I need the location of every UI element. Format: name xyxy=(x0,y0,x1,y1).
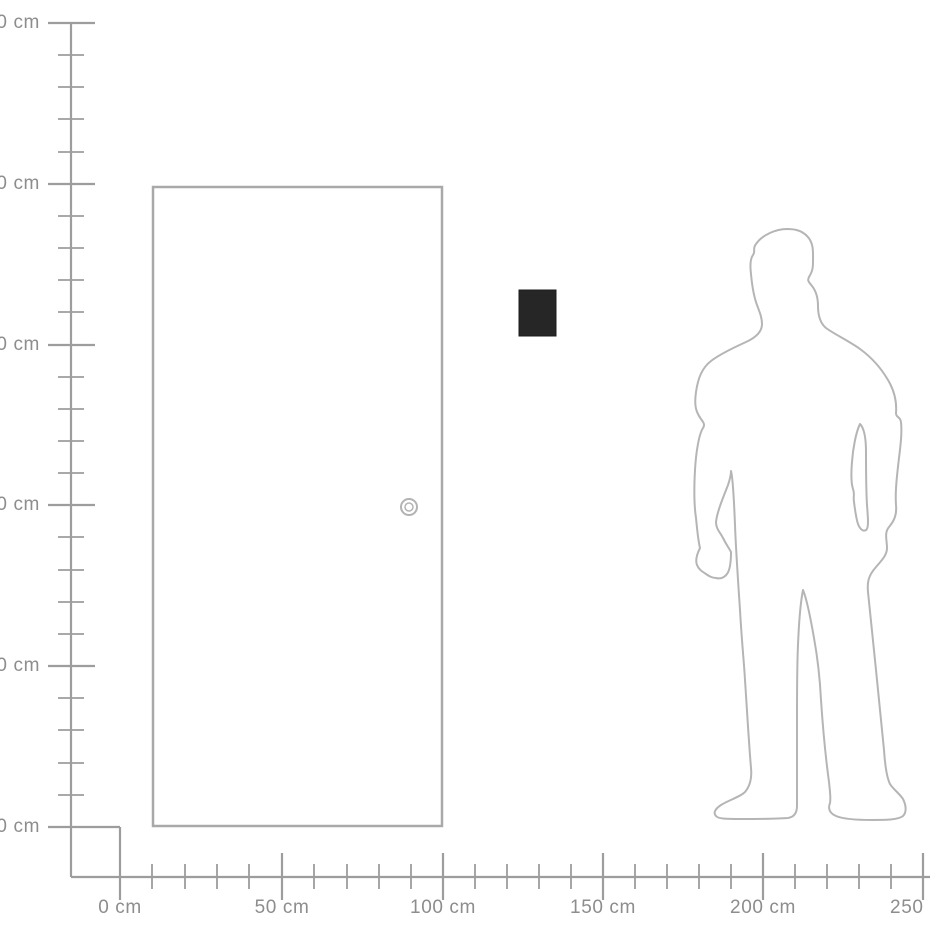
size-diagram: 250 cm 200 cm 150 cm 100 cm 50 cm 0 cm 0… xyxy=(0,0,930,930)
horizontal-ruler-major-ticks xyxy=(120,827,923,900)
human-silhouette xyxy=(694,229,905,820)
horizontal-ruler-label-0: 0 cm xyxy=(60,896,180,920)
vertical-ruler-label-100: 100 cm xyxy=(0,493,40,517)
vertical-ruler-major-ticks xyxy=(48,23,120,827)
diagram-canvas xyxy=(0,0,930,930)
vertical-ruler-label-150: 150 cm xyxy=(0,333,40,357)
horizontal-ruler-label-200: 200 cm xyxy=(703,896,823,920)
horizontal-ruler xyxy=(71,827,930,900)
door xyxy=(153,187,442,826)
vertical-ruler-label-0: 0 cm xyxy=(0,815,40,839)
vertical-ruler-label-50: 50 cm xyxy=(0,654,40,678)
human-silhouette-body xyxy=(694,229,905,820)
horizontal-ruler-label-100: 100 cm xyxy=(383,896,503,920)
horizontal-ruler-label-150: 150 cm xyxy=(543,896,663,920)
horizontal-ruler-label-50: 50 cm xyxy=(222,896,342,920)
human-silhouette-right-forearm xyxy=(851,424,868,531)
vertical-ruler xyxy=(48,23,120,877)
vertical-ruler-label-250: 250 cm xyxy=(0,11,40,35)
product-square xyxy=(519,290,556,336)
door-outline xyxy=(153,187,442,826)
horizontal-ruler-label-250: 250 cm xyxy=(863,896,930,920)
vertical-ruler-label-200: 200 cm xyxy=(0,172,40,196)
